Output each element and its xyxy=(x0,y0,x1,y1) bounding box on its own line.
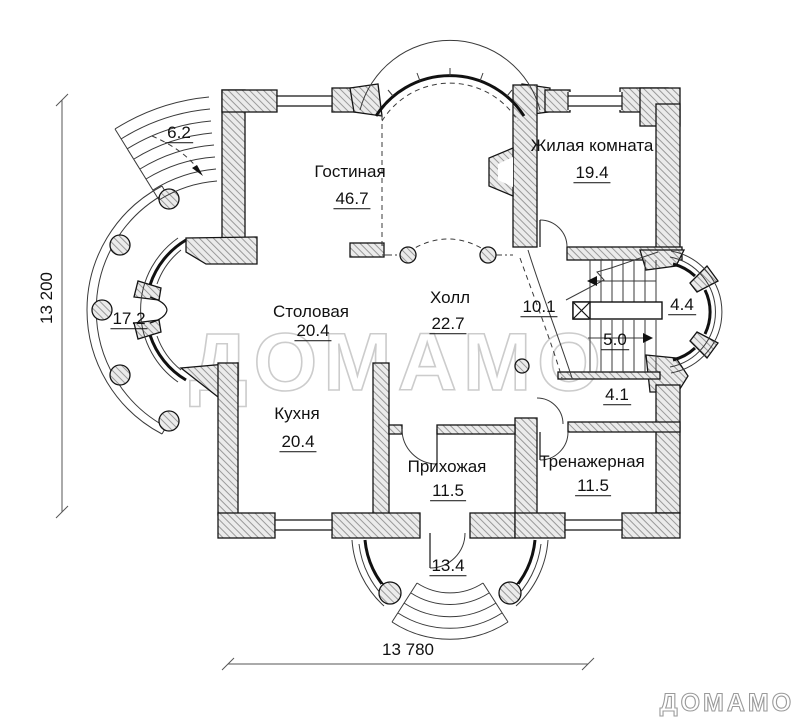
area-label-closet: 4.1 xyxy=(603,385,631,405)
brand-logo: ДОМАМО xyxy=(660,689,794,717)
terrace-column xyxy=(159,411,179,431)
floor-plan-page: ДОМАМО xyxy=(0,0,800,720)
window xyxy=(565,516,622,534)
terrace-column xyxy=(92,300,112,320)
dimension-width-label: 13 780 xyxy=(382,640,434,660)
area-label-porch: 13.4 xyxy=(429,556,466,576)
terrace-column xyxy=(110,365,130,385)
room-area-gostinaya: 46.7 xyxy=(333,189,370,209)
window xyxy=(568,92,622,110)
room-area-prihozhaya: 11.5 xyxy=(430,481,466,501)
area-label-stair-hall: 10.1 xyxy=(520,297,557,317)
porch-column xyxy=(499,582,521,604)
room-label-stolovaya: Столовая xyxy=(273,302,349,322)
room-label-kuhnya: Кухня xyxy=(274,404,320,424)
porch-column xyxy=(379,582,401,604)
watermark-text: ДОМАМО xyxy=(189,317,607,408)
area-label-bay: 4.4 xyxy=(668,295,696,315)
arch-column xyxy=(400,247,416,263)
hall-column xyxy=(515,359,529,373)
room-area-zhilaya: 19.4 xyxy=(573,163,610,183)
fan-stair xyxy=(115,97,217,200)
room-area-stolovaya: 20.4 xyxy=(294,321,331,341)
room-label-zhilaya: Жилая комната xyxy=(531,136,654,156)
room-area-kuhnya: 20.4 xyxy=(279,432,316,452)
entrance-porch xyxy=(352,540,548,639)
terrace-column xyxy=(110,235,130,255)
room-label-prihozhaya: Прихожая xyxy=(408,457,487,477)
window xyxy=(277,92,332,110)
area-label-terrace: 17.2 xyxy=(110,309,147,329)
arch-column xyxy=(480,247,496,263)
dimension-height-label: 13 200 xyxy=(37,272,57,324)
floor-plan-drawing: ДОМАМО xyxy=(0,0,800,720)
room-label-gostinaya: Гостиная xyxy=(314,162,385,182)
room-area-trenazhernaya: 11.5 xyxy=(575,476,611,496)
room-area-holl: 22.7 xyxy=(429,314,466,334)
area-label-stair-flight: 5.0 xyxy=(601,330,629,350)
room-label-holl: Холл xyxy=(430,288,470,308)
window xyxy=(275,516,332,534)
area-label-balcony-stair: 6.2 xyxy=(165,123,193,143)
room-label-trenazhernaya: Тренажерная xyxy=(539,452,645,472)
terrace-column xyxy=(159,189,179,209)
